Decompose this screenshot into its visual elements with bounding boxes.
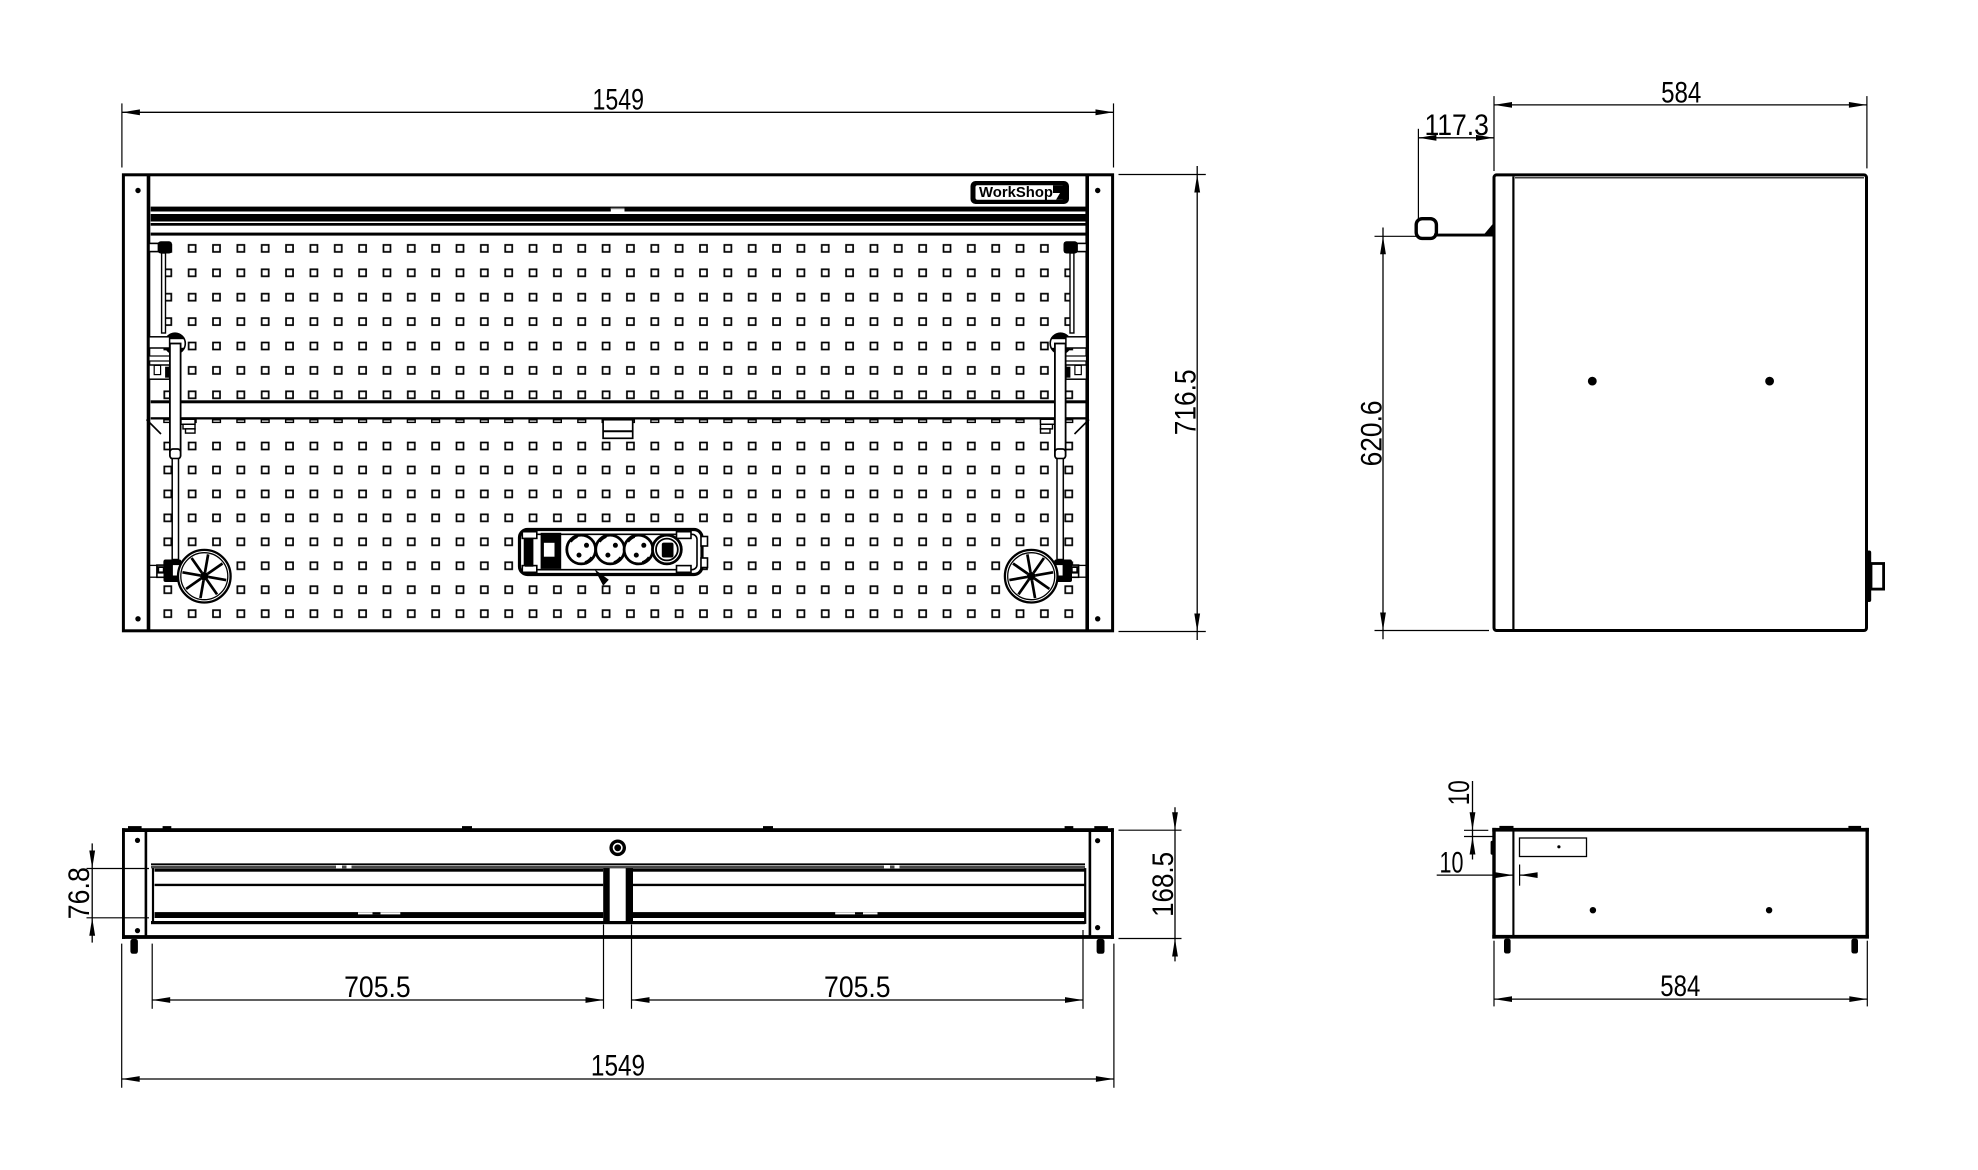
svg-text:584: 584	[1660, 970, 1700, 1003]
svg-text:584: 584	[1661, 76, 1701, 109]
svg-text:10: 10	[1443, 780, 1476, 805]
svg-text:716.5: 716.5	[1169, 369, 1202, 435]
svg-text:1549: 1549	[591, 1049, 645, 1082]
svg-text:620.6: 620.6	[1356, 400, 1389, 466]
svg-text:76.8: 76.8	[63, 867, 96, 919]
svg-text:705.5: 705.5	[344, 971, 411, 1004]
svg-text:168.5: 168.5	[1147, 852, 1180, 917]
svg-text:1549: 1549	[593, 84, 645, 117]
svg-text:705.5: 705.5	[824, 971, 891, 1004]
svg-text:WorkShop: WorkShop	[979, 185, 1053, 201]
svg-text:117.3: 117.3	[1424, 109, 1489, 142]
svg-text:10: 10	[1440, 846, 1464, 879]
